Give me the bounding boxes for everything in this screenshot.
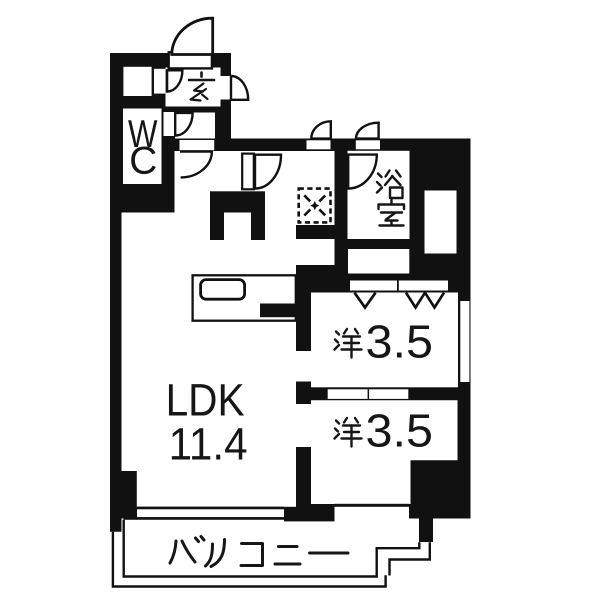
- svg-text:11.4: 11.4: [169, 419, 248, 470]
- svg-text:C: C: [129, 139, 157, 182]
- svg-text:3.5: 3.5: [366, 316, 434, 368]
- svg-text:3.5: 3.5: [366, 405, 434, 457]
